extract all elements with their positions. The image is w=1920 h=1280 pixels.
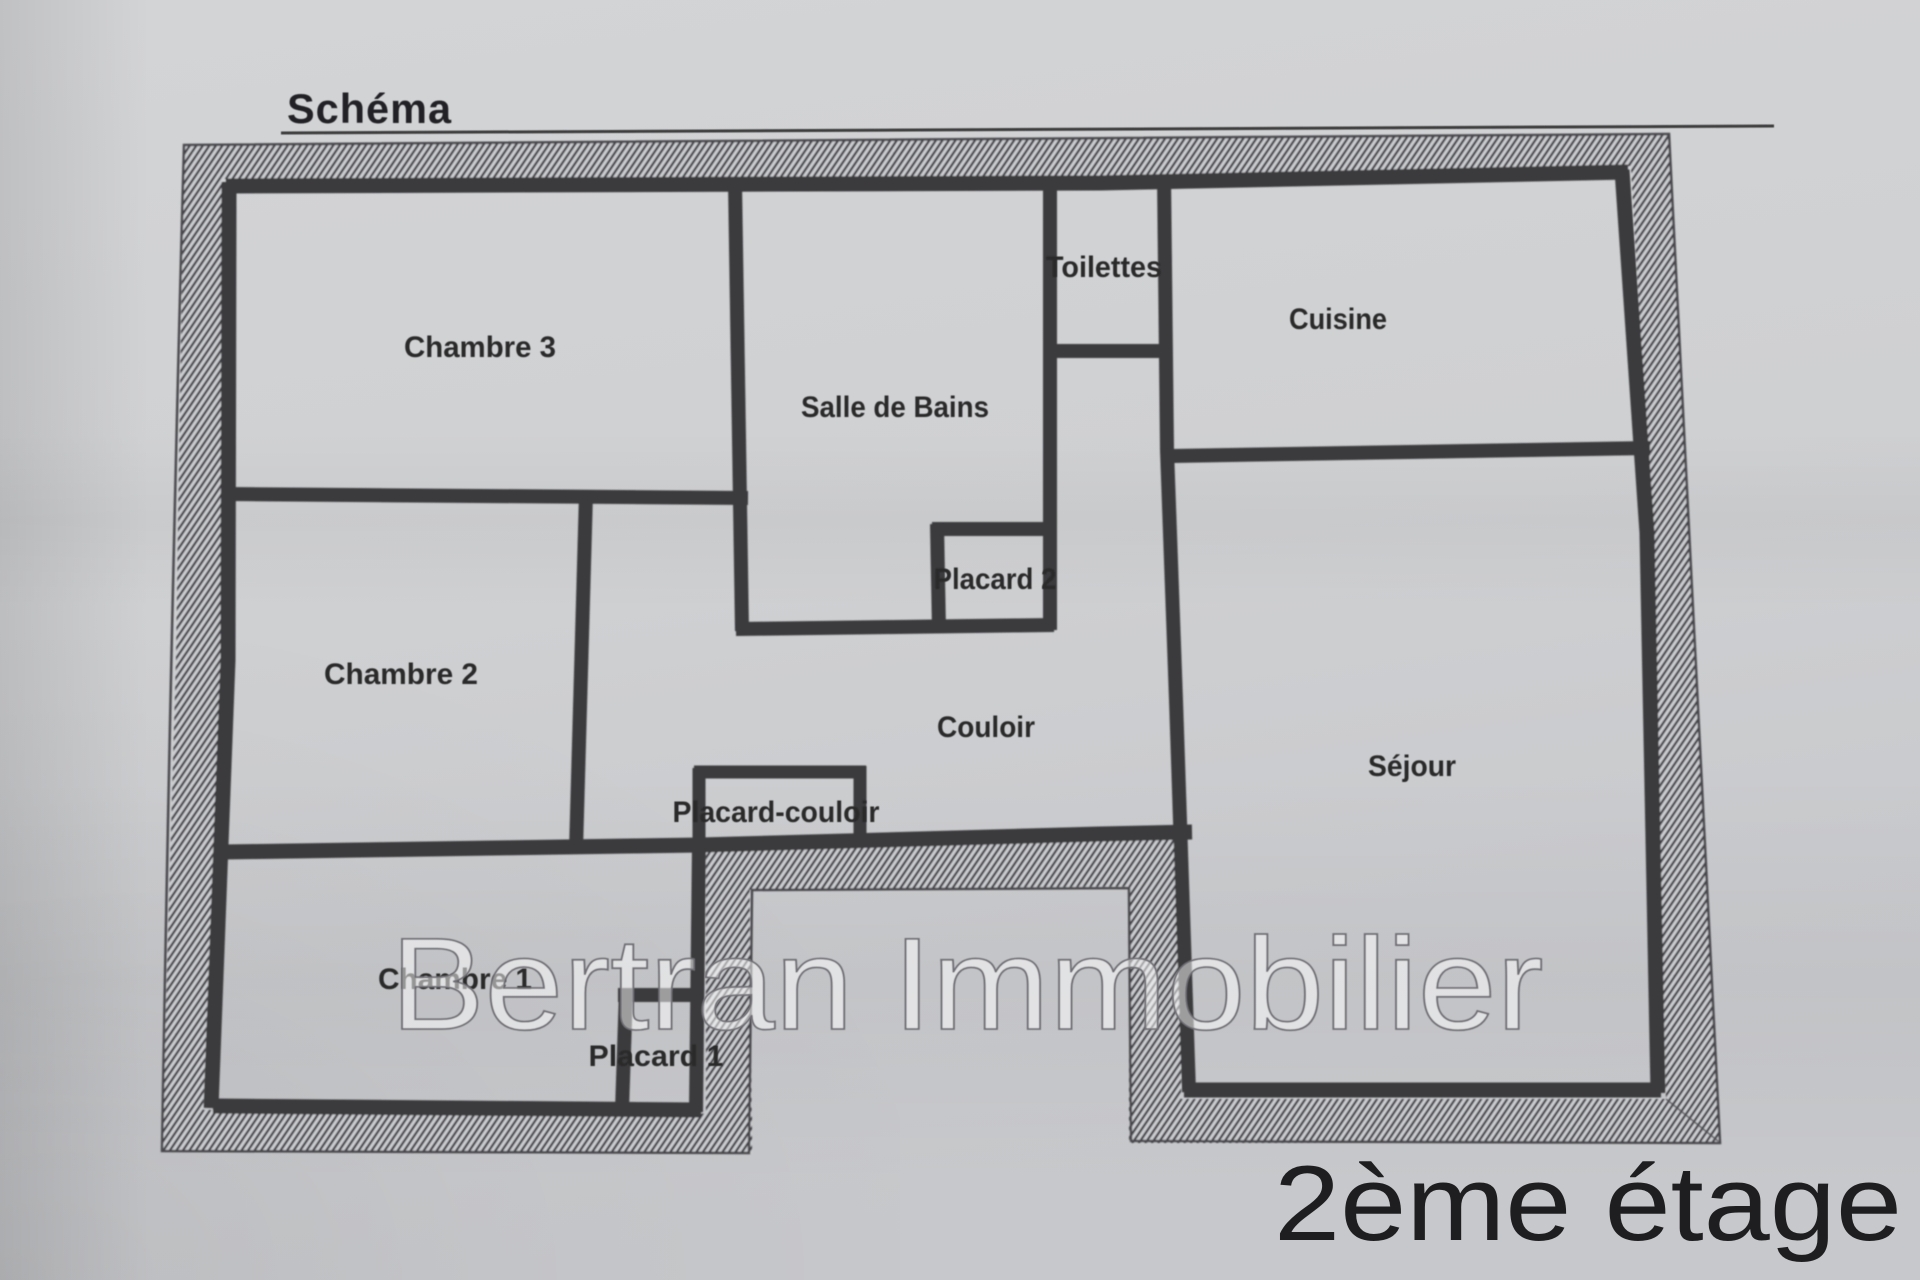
svg-text:Toilettes: Toilettes bbox=[1046, 251, 1162, 284]
svg-text:Salle de Bains: Salle de Bains bbox=[801, 391, 989, 424]
svg-text:Chambre 2: Chambre 2 bbox=[324, 658, 478, 691]
svg-text:Cuisine: Cuisine bbox=[1289, 303, 1387, 336]
svg-text:2ème étage: 2ème étage bbox=[1274, 1143, 1902, 1263]
svg-text:Couloir: Couloir bbox=[937, 711, 1035, 744]
svg-text:Placard-couloir: Placard-couloir bbox=[673, 796, 880, 829]
svg-text:Chambre 3: Chambre 3 bbox=[404, 331, 556, 364]
svg-text:Placard 2: Placard 2 bbox=[934, 563, 1057, 596]
svg-text:Bertran Immobilier: Bertran Immobilier bbox=[391, 910, 1544, 1057]
svg-text:Séjour: Séjour bbox=[1368, 750, 1456, 783]
svg-text:Schéma: Schéma bbox=[287, 85, 452, 132]
